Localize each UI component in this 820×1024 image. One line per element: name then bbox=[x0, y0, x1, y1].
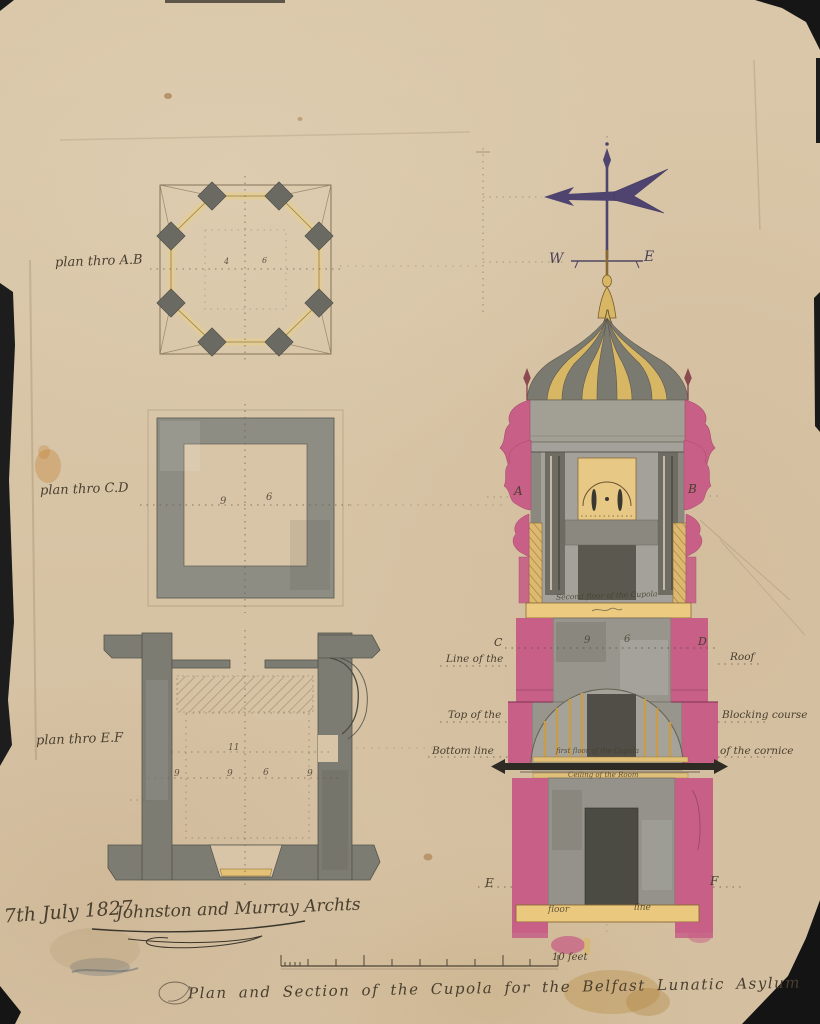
plan-ab-dim-6: 6 bbox=[262, 257, 267, 265]
ann-of-the-cornice: of the cornice bbox=[720, 746, 794, 757]
plan-ef-dim-9a: 9 bbox=[174, 770, 180, 779]
ann-top-of-the: Top of the bbox=[448, 710, 501, 721]
section-dim-9: 9 bbox=[584, 636, 590, 646]
section-letter-d: D bbox=[698, 636, 707, 647]
section-letter-c: C bbox=[494, 637, 502, 648]
plan-ef-label: plan thro E.F bbox=[36, 731, 124, 747]
plan-ef-dim-9b: 9 bbox=[227, 770, 233, 779]
section-letter-b: B bbox=[688, 483, 697, 495]
plan-cd-drawing bbox=[140, 404, 350, 613]
compass-east-label: E bbox=[644, 250, 654, 264]
ann-floor: floor bbox=[548, 906, 569, 915]
second-floor-band bbox=[526, 603, 691, 618]
onion-dome bbox=[524, 310, 691, 400]
section-letter-e: E bbox=[485, 877, 494, 889]
plan-ab-drawing bbox=[150, 176, 341, 364]
plan-cd-label: plan thro C.D bbox=[40, 481, 129, 497]
ann-ceiling: Ceiling of the Room bbox=[568, 772, 639, 779]
ann-first-floor: first floor of the Cupola bbox=[556, 748, 639, 755]
plan-ef-dim-6: 6 bbox=[263, 769, 269, 778]
plan-cd-dim-6: 6 bbox=[266, 493, 272, 503]
section-letter-a: A bbox=[514, 485, 523, 497]
ann-roof: Roof bbox=[730, 652, 754, 663]
plan-ef-dim-11: 11 bbox=[228, 744, 239, 753]
plan-cd-dim-9: 9 bbox=[220, 497, 226, 507]
scale-bar bbox=[281, 955, 558, 969]
caption-flourish bbox=[159, 982, 191, 1004]
plan-ab-dim-4: 4 bbox=[224, 258, 229, 266]
lower-tower bbox=[512, 778, 713, 954]
scale-label: 10 feet bbox=[552, 953, 587, 963]
clock-panel bbox=[578, 458, 636, 520]
ann-line-of-the: Line of the bbox=[446, 654, 503, 665]
belfry-stage bbox=[504, 440, 711, 603]
ann-line: line bbox=[634, 904, 651, 913]
drawing-sheet: plan thro A.B 4 6 plan thro C.D 9 6 plan… bbox=[0, 0, 820, 1024]
plan-ef-dim-9c: 9 bbox=[307, 770, 313, 779]
artwork-canvas bbox=[0, 0, 820, 1024]
section-drawing bbox=[428, 142, 772, 954]
ann-blocking-course: Blocking course bbox=[722, 710, 807, 721]
ann-bottom-line: Bottom line bbox=[432, 746, 494, 757]
plan-ab-label: plan thro A.B bbox=[55, 253, 143, 269]
compass-west-label: W bbox=[549, 252, 563, 266]
plan-ef-drawing bbox=[104, 630, 380, 886]
section-letter-f: F bbox=[710, 875, 718, 887]
section-dim-6: 6 bbox=[624, 635, 630, 645]
